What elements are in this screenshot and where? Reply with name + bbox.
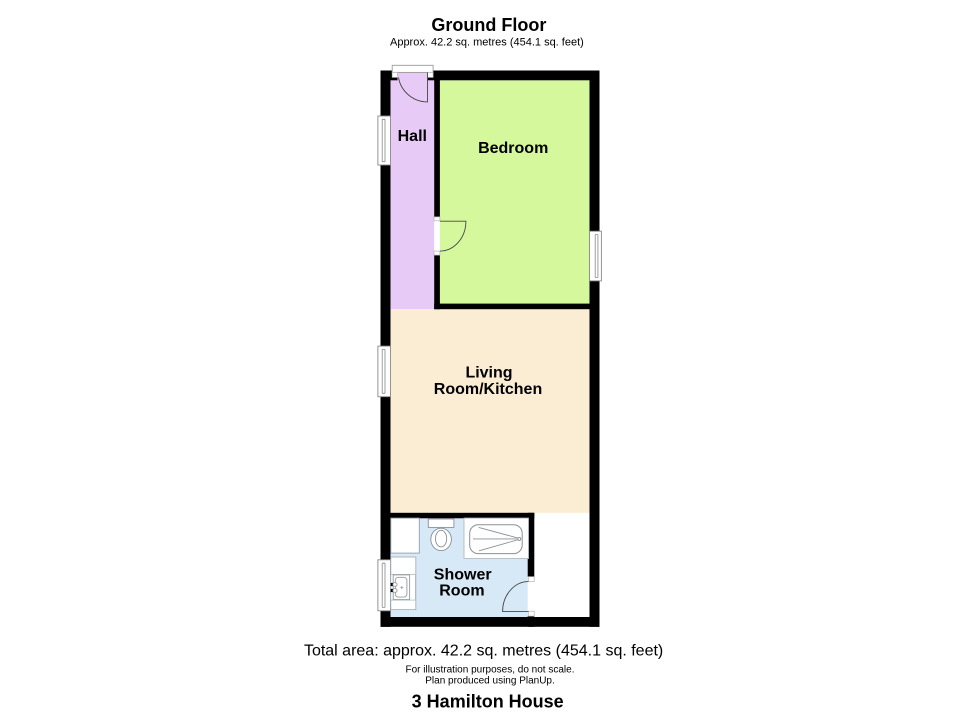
svg-text:Total area: approx. 42.2 sq. m: Total area: approx. 42.2 sq. metres (454…: [304, 643, 663, 660]
svg-text:Room: Room: [439, 583, 484, 600]
svg-text:Room/Kitchen: Room/Kitchen: [434, 381, 542, 398]
svg-text:Shower: Shower: [434, 567, 492, 584]
svg-text:Hall: Hall: [398, 128, 427, 145]
svg-text:Ground Floor: Ground Floor: [431, 15, 546, 35]
svg-text:Living: Living: [465, 365, 512, 382]
svg-text:3 Hamilton House: 3 Hamilton House: [412, 691, 564, 711]
svg-text:Bedroom: Bedroom: [478, 140, 548, 157]
svg-text:Approx. 42.2 sq. metres (454.1: Approx. 42.2 sq. metres (454.1 sq. feet): [390, 37, 584, 49]
svg-text:Plan produced using PlanUp.: Plan produced using PlanUp.: [425, 675, 555, 686]
svg-text:For illustration purposes, do: For illustration purposes, do not scale.: [406, 665, 575, 676]
